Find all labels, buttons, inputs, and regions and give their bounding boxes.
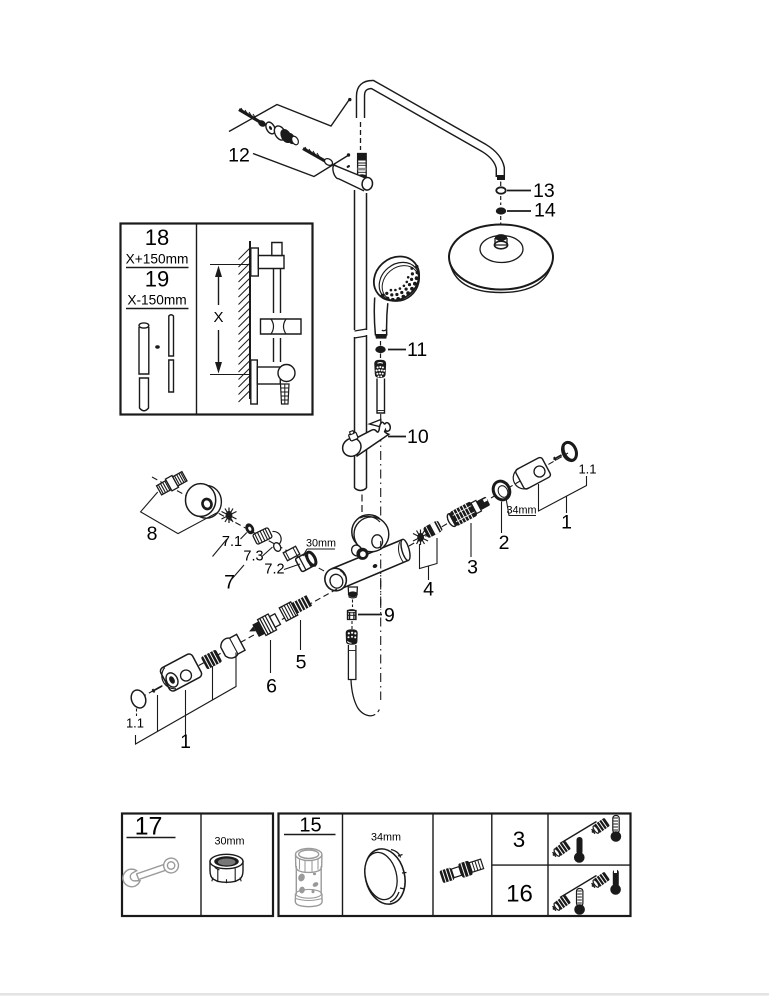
svg-text:X-150mm: X-150mm <box>127 293 186 308</box>
svg-text:5: 5 <box>296 652 307 674</box>
svg-text:19: 19 <box>145 267 169 292</box>
svg-text:9: 9 <box>384 605 395 627</box>
svg-text:34mm: 34mm <box>507 504 537 516</box>
svg-text:X+150mm: X+150mm <box>126 252 189 267</box>
svg-text:30mm: 30mm <box>215 836 245 848</box>
svg-text:4: 4 <box>423 579 434 601</box>
svg-text:11: 11 <box>407 339 427 361</box>
svg-text:12: 12 <box>228 145 250 167</box>
svg-text:1.1: 1.1 <box>578 462 596 477</box>
svg-text:8: 8 <box>147 523 158 545</box>
svg-text:7.3: 7.3 <box>243 549 263 565</box>
svg-text:10: 10 <box>407 426 429 448</box>
svg-text:3: 3 <box>513 827 526 852</box>
svg-text:1: 1 <box>561 512 572 534</box>
svg-text:1.1: 1.1 <box>126 716 144 731</box>
svg-text:7.2: 7.2 <box>264 562 284 578</box>
svg-text:16: 16 <box>506 881 533 908</box>
svg-text:15: 15 <box>299 815 321 837</box>
svg-text:7: 7 <box>224 572 235 594</box>
svg-text:18: 18 <box>145 225 169 250</box>
svg-text:X: X <box>213 309 223 326</box>
svg-text:34mm: 34mm <box>371 832 401 844</box>
svg-text:2: 2 <box>499 532 510 554</box>
svg-text:6: 6 <box>266 676 277 698</box>
svg-text:14: 14 <box>534 200 556 222</box>
svg-text:30mm: 30mm <box>306 537 336 549</box>
svg-text:17: 17 <box>135 813 163 841</box>
svg-text:3: 3 <box>467 557 478 579</box>
